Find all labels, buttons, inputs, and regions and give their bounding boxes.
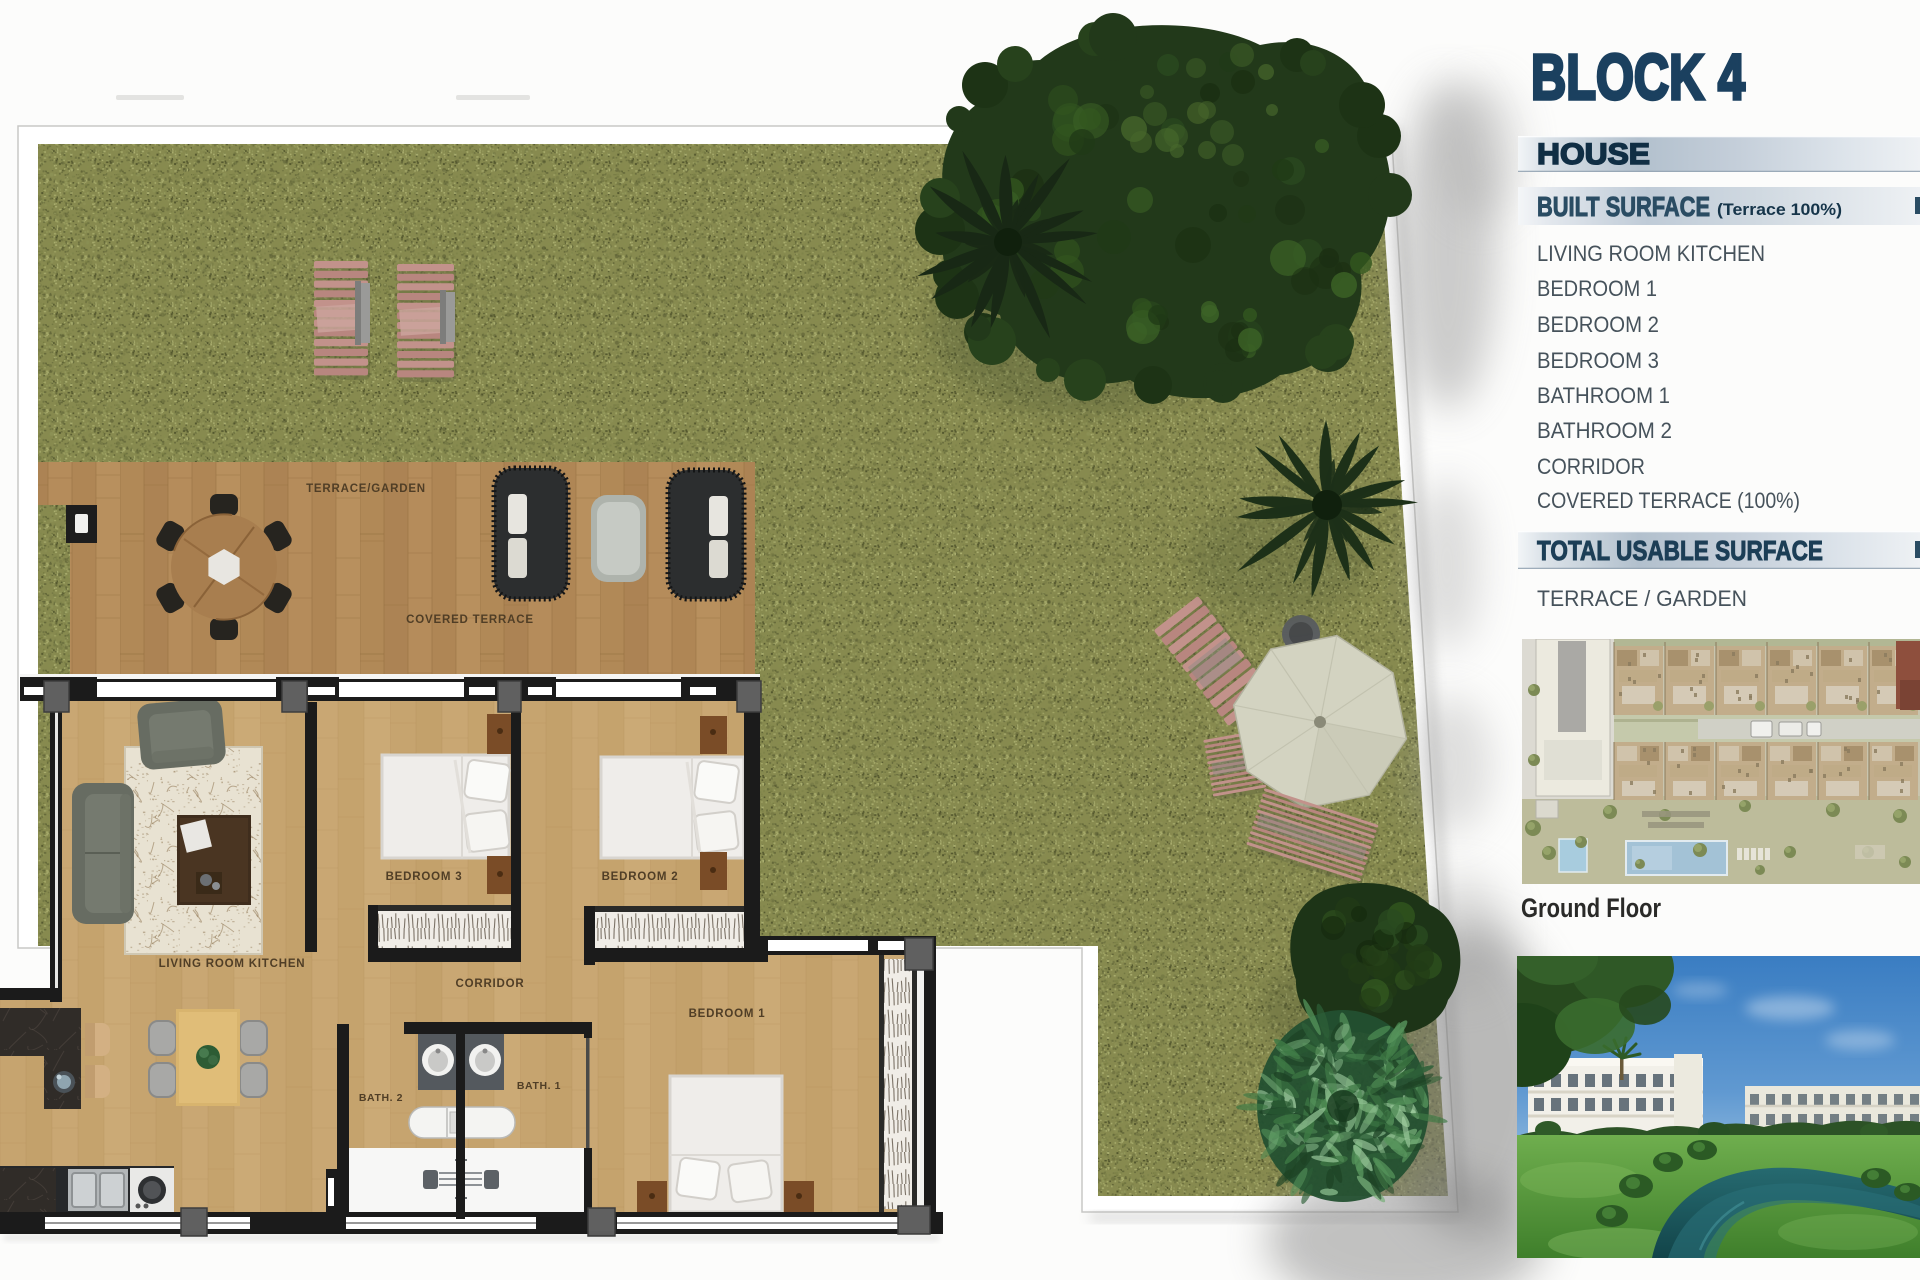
- svg-text:HOUSE: HOUSE: [1537, 138, 1650, 171]
- svg-text:BATH. 1: BATH. 1: [517, 1080, 561, 1092]
- svg-text:BATHROOM 1: BATHROOM 1: [1537, 383, 1670, 408]
- svg-text:BEDROOM 2: BEDROOM 2: [602, 871, 679, 883]
- svg-text:BEDROOM 3: BEDROOM 3: [1537, 348, 1659, 373]
- svg-text:TERRACE/GARDEN: TERRACE/GARDEN: [306, 483, 426, 495]
- svg-text:COVERED TERRACE (100%): COVERED TERRACE (100%): [1537, 488, 1800, 513]
- svg-text:BATH. 2: BATH. 2: [359, 1092, 403, 1104]
- svg-text:CORRIDOR: CORRIDOR: [1537, 454, 1645, 479]
- svg-text:BEDROOM 3: BEDROOM 3: [386, 871, 463, 883]
- svg-text:TERRACE / GARDEN: TERRACE / GARDEN: [1537, 586, 1747, 611]
- svg-text:LIVING ROOM KITCHEN: LIVING ROOM KITCHEN: [159, 958, 306, 970]
- svg-text:TOTAL USABLE SURFACE: TOTAL USABLE SURFACE: [1537, 535, 1823, 566]
- svg-text:BUILT SURFACE: BUILT SURFACE: [1537, 191, 1710, 222]
- svg-text:BATHROOM 2: BATHROOM 2: [1537, 418, 1672, 443]
- svg-text:CORRIDOR: CORRIDOR: [455, 978, 524, 990]
- svg-text:Ground Floor: Ground Floor: [1521, 893, 1661, 923]
- svg-text:COVERED TERRACE: COVERED TERRACE: [406, 614, 534, 626]
- svg-text:LIVING ROOM KITCHEN: LIVING ROOM KITCHEN: [1537, 241, 1765, 266]
- svg-text:BEDROOM 2: BEDROOM 2: [1537, 312, 1659, 337]
- svg-text:BLOCK 4: BLOCK 4: [1531, 41, 1745, 113]
- svg-text:BEDROOM 1: BEDROOM 1: [689, 1008, 766, 1020]
- svg-text:BEDROOM 1: BEDROOM 1: [1537, 276, 1657, 301]
- svg-text:(Terrace 100%): (Terrace 100%): [1717, 200, 1842, 219]
